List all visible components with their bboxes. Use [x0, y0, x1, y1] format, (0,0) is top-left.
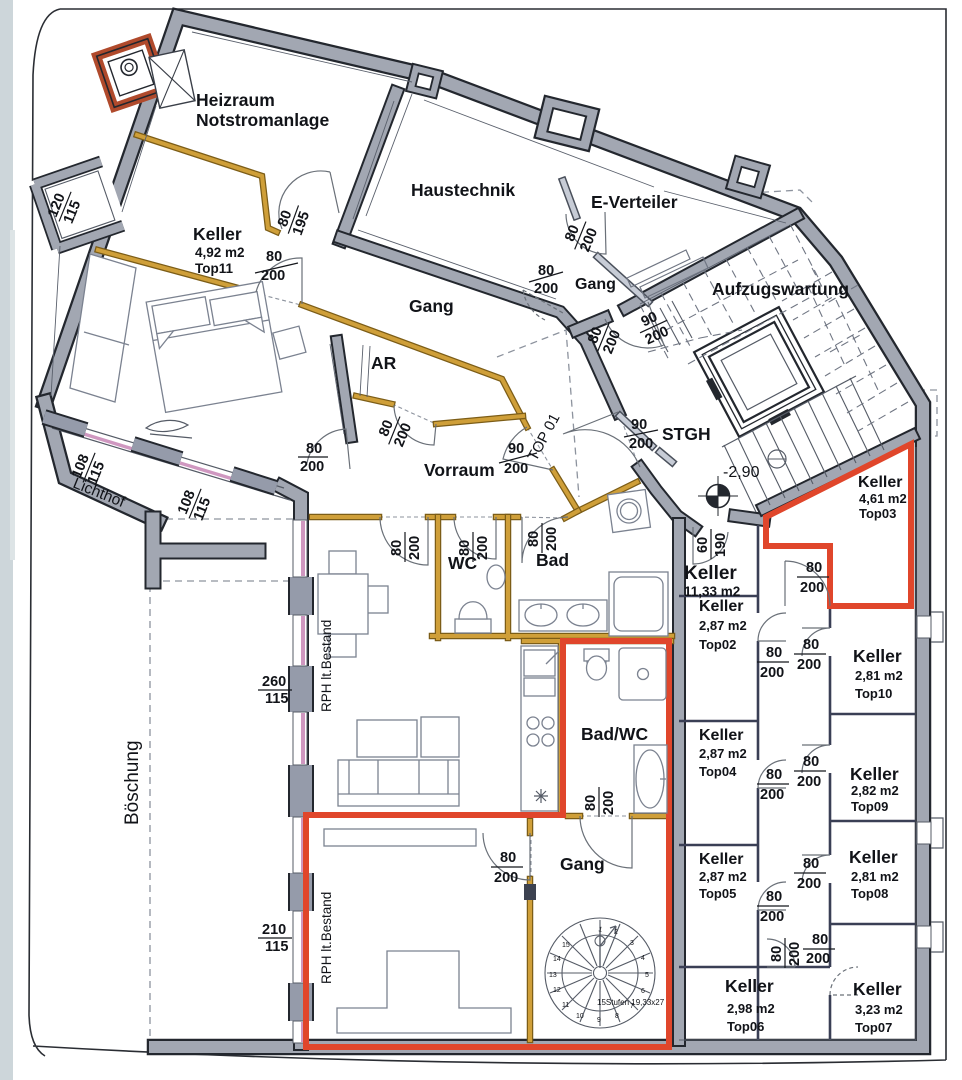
svg-text:5: 5 — [645, 972, 649, 979]
svg-text:3: 3 — [630, 940, 634, 947]
svg-text:200: 200 — [544, 527, 560, 551]
svg-text:200: 200 — [787, 942, 803, 966]
svg-text:8: 8 — [615, 1013, 619, 1020]
svg-text:Bad/WC: Bad/WC — [581, 724, 648, 744]
svg-text:4,92 m2: 4,92 m2 — [195, 245, 245, 260]
svg-text:Keller: Keller — [699, 851, 743, 868]
svg-text:210: 210 — [262, 922, 286, 938]
svg-text:Gang: Gang — [560, 854, 605, 874]
svg-text:80: 80 — [526, 531, 542, 547]
svg-text:2,87 m2: 2,87 m2 — [699, 618, 747, 633]
svg-text:2,87 m2: 2,87 m2 — [699, 869, 747, 884]
svg-text:2: 2 — [614, 929, 618, 936]
svg-text:80: 80 — [769, 946, 785, 962]
svg-text:80: 80 — [806, 560, 822, 576]
svg-text:200: 200 — [475, 536, 491, 560]
svg-text:80: 80 — [766, 767, 782, 783]
svg-text:Keller: Keller — [699, 598, 743, 615]
svg-text:80: 80 — [803, 754, 819, 770]
svg-text:90: 90 — [631, 417, 647, 433]
svg-text:Keller: Keller — [699, 727, 743, 744]
svg-text:80: 80 — [389, 540, 405, 556]
svg-text:Böschung: Böschung — [122, 740, 143, 825]
svg-text:Top06: Top06 — [727, 1019, 764, 1034]
svg-text:Haustechnik: Haustechnik — [411, 180, 515, 200]
svg-text:13: 13 — [549, 972, 557, 979]
svg-text:Keller: Keller — [193, 224, 242, 244]
svg-text:RPH lt.Bestand: RPH lt.Bestand — [319, 620, 334, 712]
svg-text:Top04: Top04 — [699, 764, 737, 779]
svg-text:15: 15 — [562, 942, 570, 949]
svg-text:200: 200 — [760, 909, 784, 925]
svg-text:Keller: Keller — [853, 979, 902, 999]
svg-text:80: 80 — [500, 850, 516, 866]
svg-text:2,81 m2: 2,81 m2 — [855, 668, 903, 683]
svg-text:4: 4 — [641, 955, 645, 962]
svg-text:Top09: Top09 — [851, 799, 888, 814]
svg-text:115: 115 — [265, 939, 288, 955]
svg-text:80: 80 — [266, 249, 282, 265]
svg-text:2,87 m2: 2,87 m2 — [699, 746, 747, 761]
svg-text:Keller: Keller — [725, 976, 774, 996]
svg-text:10: 10 — [576, 1013, 584, 1020]
svg-text:-2,90: -2,90 — [723, 464, 760, 481]
svg-text:Gang: Gang — [409, 296, 454, 316]
svg-text:80: 80 — [766, 889, 782, 905]
svg-text:115: 115 — [265, 691, 288, 707]
svg-text:Aufzugswartung: Aufzugswartung — [712, 279, 849, 299]
svg-text:Top11: Top11 — [195, 261, 234, 276]
svg-text:80: 80 — [812, 932, 828, 948]
svg-text:200: 200 — [797, 876, 821, 892]
svg-text:2,82 m2: 2,82 m2 — [851, 783, 899, 798]
svg-text:Vorraum: Vorraum — [424, 460, 495, 480]
svg-text:Top07: Top07 — [855, 1020, 892, 1035]
svg-text:Notstromanlage: Notstromanlage — [196, 110, 329, 130]
svg-text:190: 190 — [713, 533, 729, 557]
svg-text:15Stufen 19,33x27: 15Stufen 19,33x27 — [597, 998, 665, 1007]
svg-text:9: 9 — [597, 1017, 601, 1024]
svg-text:200: 200 — [407, 536, 423, 560]
svg-text:200: 200 — [494, 870, 518, 886]
svg-text:200: 200 — [534, 281, 558, 297]
svg-text:200: 200 — [300, 459, 324, 475]
svg-text:Keller: Keller — [684, 563, 737, 584]
svg-text:200: 200 — [504, 461, 528, 477]
svg-text:AR: AR — [371, 353, 397, 373]
svg-text:3,23 m2: 3,23 m2 — [855, 1002, 903, 1017]
svg-text:80: 80 — [583, 795, 599, 811]
svg-text:12: 12 — [553, 987, 561, 994]
svg-text:200: 200 — [760, 787, 784, 803]
svg-text:90: 90 — [508, 441, 524, 457]
svg-text:2,98 m2: 2,98 m2 — [727, 1001, 775, 1016]
svg-text:2,81 m2: 2,81 m2 — [851, 869, 899, 884]
svg-text:80: 80 — [457, 540, 473, 556]
svg-text:260: 260 — [262, 674, 286, 690]
svg-text:200: 200 — [629, 436, 653, 452]
svg-text:200: 200 — [800, 580, 824, 596]
svg-text:80: 80 — [803, 856, 819, 872]
svg-text:80: 80 — [306, 441, 322, 457]
svg-text:Top02: Top02 — [699, 637, 736, 652]
svg-text:Keller: Keller — [850, 764, 899, 784]
svg-text:Keller: Keller — [853, 646, 902, 666]
svg-text:Top03: Top03 — [859, 506, 896, 521]
svg-text:200: 200 — [806, 951, 830, 967]
svg-text:Top10: Top10 — [855, 686, 892, 701]
svg-text:Keller: Keller — [858, 474, 902, 491]
svg-text:60: 60 — [695, 537, 711, 553]
svg-text:11,33 m2: 11,33 m2 — [684, 584, 740, 599]
svg-text:80: 80 — [766, 645, 782, 661]
svg-text:11: 11 — [562, 1002, 569, 1009]
svg-text:4,61 m2: 4,61 m2 — [859, 491, 907, 506]
svg-text:RPH lt.Bestand: RPH lt.Bestand — [319, 892, 334, 984]
svg-text:Bad: Bad — [536, 550, 569, 570]
svg-text:Top08: Top08 — [851, 886, 888, 901]
svg-text:Gang: Gang — [575, 276, 616, 293]
svg-text:200: 200 — [797, 774, 821, 790]
svg-text:STGH: STGH — [662, 424, 711, 444]
svg-text:6: 6 — [641, 988, 645, 995]
svg-text:14: 14 — [553, 956, 561, 963]
svg-text:E-Verteiler: E-Verteiler — [591, 192, 678, 212]
svg-text:200: 200 — [797, 657, 821, 673]
svg-text:80: 80 — [803, 637, 819, 653]
svg-text:Top05: Top05 — [699, 886, 736, 901]
svg-text:200: 200 — [760, 665, 784, 681]
svg-text:Heizraum: Heizraum — [196, 90, 275, 110]
svg-text:200: 200 — [601, 791, 617, 815]
svg-text:Keller: Keller — [849, 847, 898, 867]
